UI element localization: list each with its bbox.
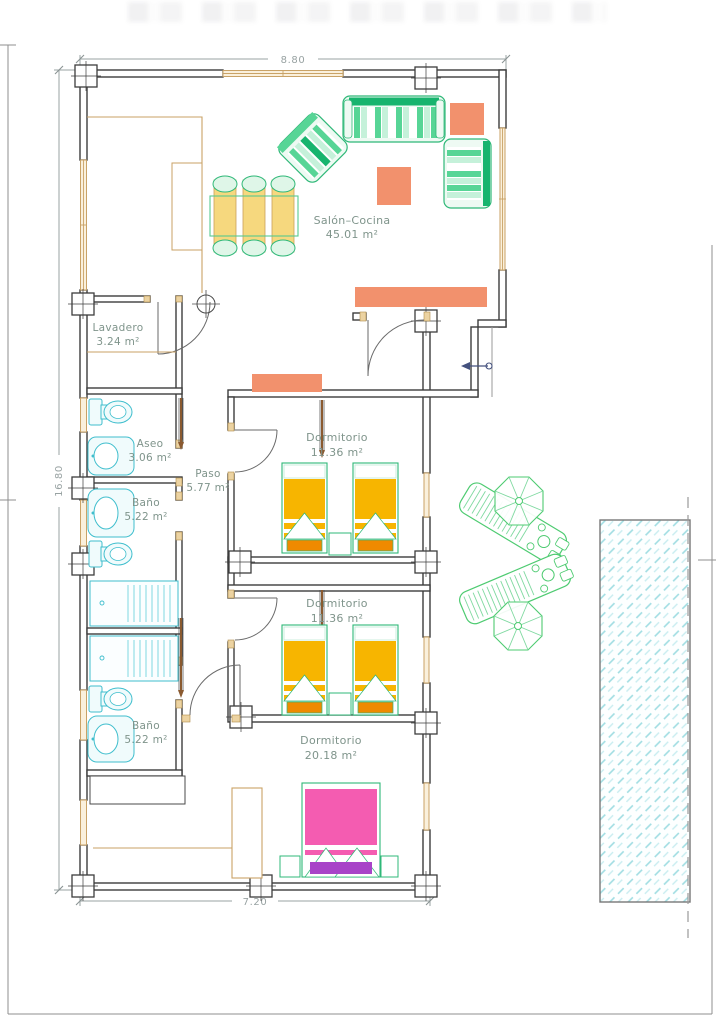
room-area-bano1: 5.22 m² (124, 511, 167, 523)
dining-set (210, 176, 298, 256)
dimension-top-label: 8.80 (281, 55, 306, 66)
side-table (450, 103, 484, 135)
swimming-pool (600, 497, 690, 938)
room-label-dormitorio1: Dormitorio (306, 431, 368, 444)
bano1-fixtures (88, 489, 178, 626)
room-area-dormitorio1: 11.36 m² (311, 446, 364, 459)
coffee-table (377, 167, 411, 205)
living-rug (355, 287, 487, 307)
room-label-paso: Paso (195, 468, 220, 480)
floorplan-sheet: 8.80 16.80 7.20 (0, 0, 724, 1024)
parasol (494, 602, 542, 650)
nightstand (329, 533, 351, 555)
dormitorio2-furniture (282, 625, 398, 715)
dimension-left-label: 16.80 (54, 465, 65, 497)
nightstand (329, 693, 351, 715)
double-bed (302, 783, 380, 877)
room-label-dormitorio2: Dormitorio (306, 597, 368, 610)
sofa-large (343, 96, 445, 142)
floorplan-drawing: 8.80 16.80 7.20 (0, 0, 724, 1024)
nightstand (280, 856, 300, 877)
drain-symbol (192, 290, 220, 318)
nightstand (381, 856, 398, 877)
kitchen-furniture (87, 117, 202, 352)
wardrobe (232, 788, 262, 878)
room-area-salon: 45.01 m² (326, 228, 379, 241)
room-label-bano1: Baño (132, 497, 160, 509)
sofa-small (444, 139, 491, 208)
parasol (495, 477, 543, 525)
room-area-paso: 5.77 m² (186, 482, 229, 494)
room-area-lavadero: 3.24 m² (96, 336, 139, 348)
aseo-fixtures (88, 399, 134, 475)
room-area-dormitorio2: 11.36 m² (311, 612, 364, 625)
room-area-bano2: 5.22 m² (124, 734, 167, 746)
dormitorio1-furniture (282, 463, 398, 555)
room-label-lavadero: Lavadero (93, 322, 144, 334)
room-area-aseo: 3.06 m² (128, 452, 171, 464)
dimension-bottom-label: 7.20 (243, 897, 268, 908)
armchair (276, 111, 351, 186)
room-label-salon: Salón–Cocina (314, 214, 391, 227)
hall-rug (252, 374, 322, 392)
room-label-aseo: Aseo (137, 438, 164, 450)
room-area-dormitorio3: 20.18 m² (305, 749, 358, 762)
room-label-dormitorio3: Dormitorio (300, 734, 362, 747)
room-label-bano2: Baño (132, 720, 160, 732)
dimension-top: 8.80 (76, 55, 510, 70)
sun-loungers (456, 477, 576, 650)
